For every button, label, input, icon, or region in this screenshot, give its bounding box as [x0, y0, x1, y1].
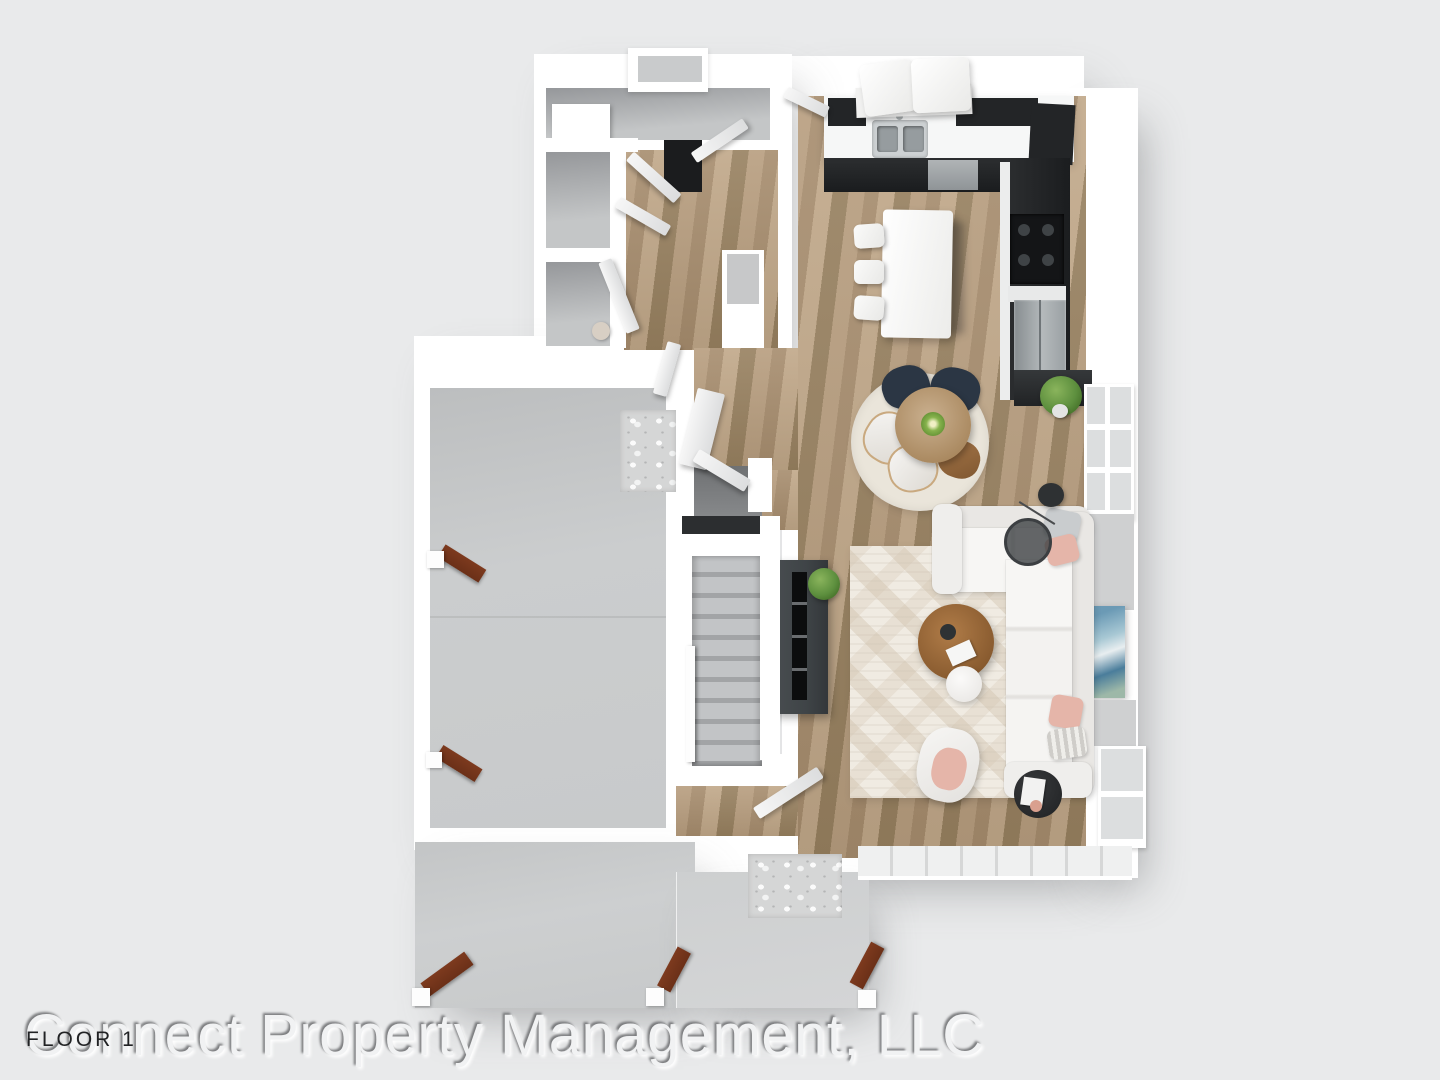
coffee-table-decor	[940, 624, 956, 640]
floor-lamp-base	[1038, 483, 1064, 507]
window-dining	[1084, 384, 1134, 520]
driveway-floor	[415, 842, 695, 1008]
side-table-decor	[1030, 800, 1042, 812]
bathroom-floor	[546, 152, 610, 248]
window-glass-top	[636, 54, 704, 84]
stair-railing	[686, 646, 695, 762]
floor-lamp-shade	[1004, 518, 1052, 566]
burner-3	[1018, 254, 1030, 266]
laundry-cabinet	[552, 104, 610, 142]
bar-stool-2	[854, 260, 884, 284]
bar-stool-3	[853, 295, 885, 321]
bar-stool-1	[853, 223, 885, 249]
sink-basin-left	[877, 126, 898, 152]
right-run-counter-edge	[1000, 162, 1010, 400]
sofa-arm-left	[932, 504, 962, 594]
stove-cooktop	[1010, 214, 1064, 284]
corner-cabinet	[1028, 103, 1075, 165]
bench-cushion-left	[859, 59, 918, 118]
tv-screen	[792, 572, 807, 700]
floorplan-3d-render: Connect Property Management, LLC FLOOR 1	[0, 0, 1440, 1080]
pillow-pink-2	[1047, 693, 1084, 730]
bench-cushion-right	[911, 57, 972, 114]
beam-cap-1	[427, 551, 444, 568]
ottoman-pouf	[946, 666, 982, 702]
closet-wall-stub	[748, 458, 772, 512]
toilet-fixture	[592, 322, 610, 340]
burner-1	[1018, 224, 1030, 236]
watermark-text: Connect Property Management, LLC	[24, 1002, 985, 1069]
base-cabinet-run	[824, 158, 1010, 192]
kitchen-island	[881, 209, 953, 338]
leaning-artwork	[1090, 606, 1125, 698]
interior-wall-face	[727, 254, 759, 304]
sink-basin-right	[903, 126, 924, 152]
pillow-striped	[1046, 726, 1088, 761]
plant-tv-console	[808, 568, 840, 600]
staircase	[692, 556, 762, 766]
beam-cap-2	[426, 752, 442, 768]
stair-wall-right	[760, 516, 780, 760]
stair-top-wall	[676, 534, 772, 558]
dishwasher	[928, 160, 978, 190]
window-band-bottom	[858, 846, 1132, 880]
interior-wall-h2	[546, 248, 610, 262]
burner-2	[1042, 224, 1054, 236]
entry-doormat	[748, 854, 842, 918]
table-centerpiece-wreath	[921, 412, 945, 436]
plant-pot-sideboard	[1052, 404, 1068, 418]
window-living	[1098, 746, 1146, 848]
refrigerator-seam	[1039, 300, 1041, 372]
burner-4	[1042, 254, 1054, 266]
garage-floor-seam	[430, 616, 666, 618]
garage-doormat	[620, 410, 676, 492]
floor-label: FLOOR 1	[26, 1028, 137, 1052]
